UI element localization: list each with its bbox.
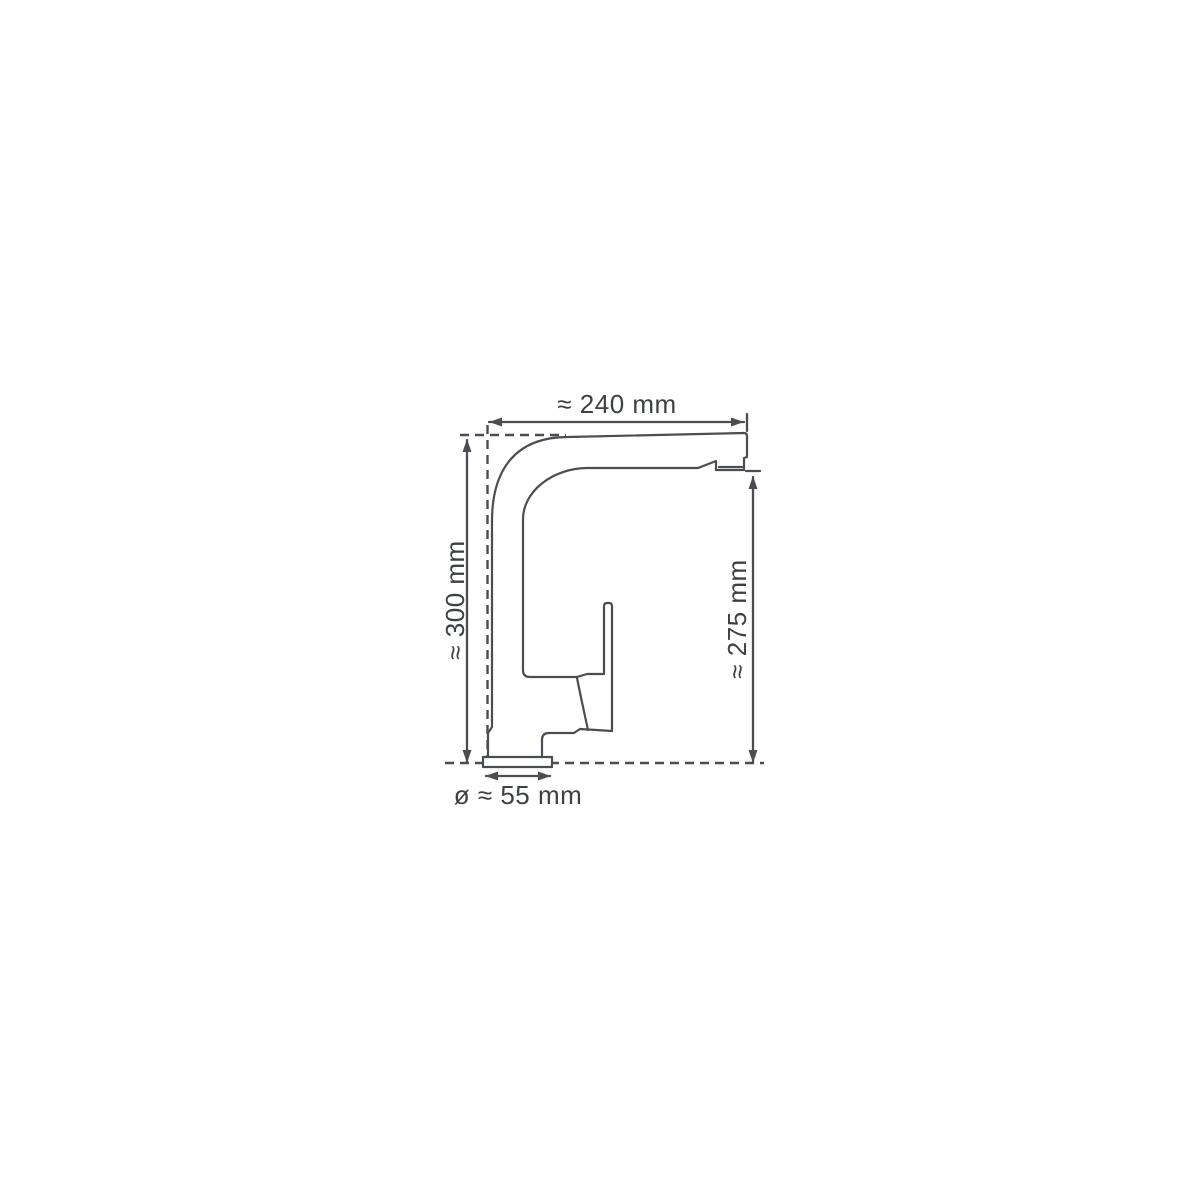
left-height-label: ≈ 300 mm	[440, 540, 470, 659]
faucet-outline	[483, 433, 747, 767]
top-width-label: ≈ 240 mm	[557, 389, 676, 419]
arrowhead-top-left	[489, 418, 502, 427]
faucet-body	[483, 433, 747, 767]
arrowhead-left-down	[463, 750, 472, 763]
base-diameter-label: ø ≈ 55 mm	[454, 780, 583, 810]
arrowhead-right-up	[749, 476, 758, 489]
faucet-dimension-drawing: ≈ 240 mm ≈ 300 mm ≈ 275 mm ø ≈ 55 mm	[0, 0, 1200, 1200]
arrowhead-right-down	[749, 750, 758, 763]
arrowhead-top-right	[731, 418, 744, 427]
arrowhead-left-up	[463, 439, 472, 452]
diagram-page: ≈ 240 mm ≈ 300 mm ≈ 275 mm ø ≈ 55 mm	[0, 0, 1200, 1200]
right-height-label: ≈ 275 mm	[722, 559, 752, 678]
